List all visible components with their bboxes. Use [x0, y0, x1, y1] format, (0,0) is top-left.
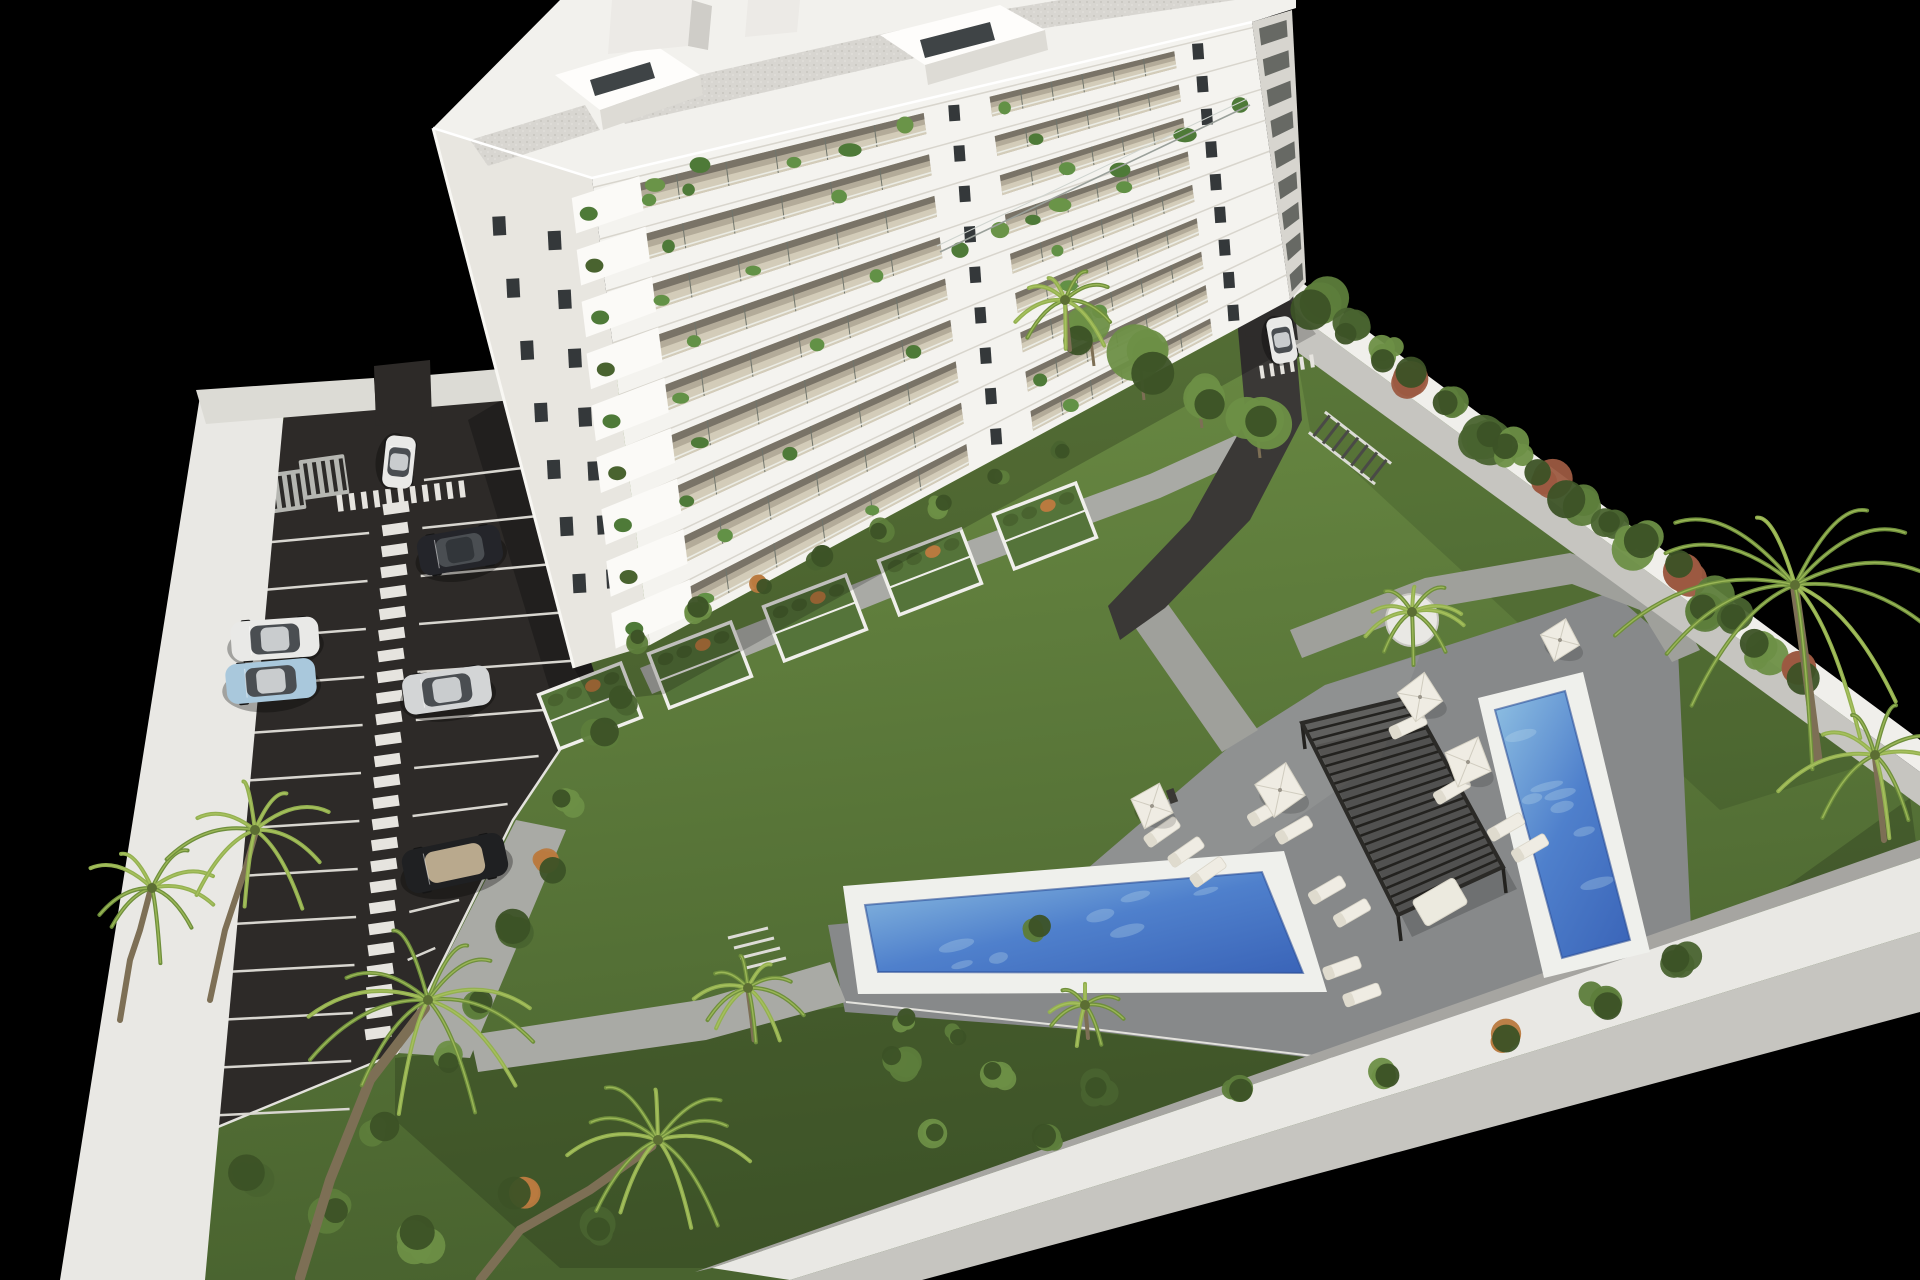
balcony-plant	[906, 345, 922, 359]
pier-window	[1205, 141, 1217, 158]
balcony-plant	[998, 101, 1010, 114]
west-window	[578, 407, 592, 427]
corner-balcony-plant	[603, 414, 621, 428]
balcony-plant	[687, 335, 701, 347]
balcony-plant	[782, 447, 797, 461]
pier-window	[1223, 272, 1235, 289]
scene-canvas	[0, 0, 1920, 1280]
balcony-plant	[870, 269, 884, 282]
roof-terrace-plant	[838, 143, 861, 156]
west-window	[572, 574, 586, 594]
car-roof	[389, 453, 409, 471]
roof-terrace-plant	[645, 178, 665, 192]
roof-terrace-plant	[897, 117, 914, 134]
balcony-plant	[717, 529, 733, 543]
bush	[918, 1119, 948, 1149]
balcony-plant	[1116, 181, 1132, 193]
palm-crown	[1060, 295, 1070, 305]
palm-crown	[147, 883, 157, 893]
car-roof	[256, 668, 287, 694]
roof-chimney-side	[688, 0, 712, 50]
west-window	[520, 340, 534, 360]
palm-crown	[743, 983, 753, 993]
west-window	[506, 278, 520, 298]
roof-terrace-plant	[690, 157, 711, 173]
balcony-plant	[745, 266, 761, 276]
palm-crown	[1080, 1000, 1090, 1010]
balcony-plant	[1025, 215, 1041, 225]
balcony-plant	[691, 437, 709, 448]
corner-balcony-plant	[620, 570, 638, 584]
balcony-plant	[1059, 162, 1076, 175]
balcony-plant	[1063, 399, 1079, 412]
architectural-rendering	[0, 0, 1920, 1280]
balcony-plant	[787, 157, 802, 168]
pier-window	[1196, 76, 1208, 93]
pier-window	[948, 105, 960, 122]
bush	[498, 1177, 541, 1210]
pier-window	[1219, 239, 1231, 256]
balcony-plant	[1051, 245, 1063, 257]
balcony-plant	[642, 194, 656, 206]
palm-crown	[1407, 607, 1417, 617]
pier-window	[1227, 304, 1239, 321]
car-roof	[1273, 331, 1291, 348]
corner-balcony-plant	[597, 362, 615, 376]
palm-crown	[1870, 750, 1880, 760]
pier-window	[1214, 206, 1226, 223]
balcony-plant	[654, 295, 670, 306]
corner-balcony-plant	[591, 311, 609, 325]
pier-window	[980, 347, 992, 364]
roof-terrace-plant	[1049, 198, 1072, 212]
west-window	[534, 403, 548, 423]
bike-rack	[298, 454, 349, 500]
roof-chimney	[745, 0, 800, 37]
balcony-plant	[682, 184, 695, 196]
balcony-plant	[1029, 133, 1044, 145]
roof-chimney	[608, 0, 692, 54]
west-window	[560, 517, 574, 537]
corner-balcony-plant	[608, 466, 626, 480]
west-window	[547, 460, 561, 480]
pier-window	[1210, 174, 1222, 191]
car-roof	[431, 676, 462, 704]
west-window	[548, 231, 562, 251]
west-window	[492, 216, 506, 236]
pier-window	[990, 428, 1002, 445]
balcony-plant	[865, 505, 879, 515]
balcony-plant	[662, 240, 675, 253]
balcony-plant	[672, 393, 689, 404]
palm-crown	[1790, 580, 1800, 590]
palm-crown	[653, 1135, 663, 1145]
balcony-plant	[679, 495, 694, 507]
pier-window	[969, 266, 981, 283]
west-window	[568, 348, 582, 368]
pier-window	[985, 388, 997, 405]
pier-window	[953, 145, 965, 162]
car-roof	[445, 536, 476, 564]
palm-crown	[423, 995, 433, 1005]
pier-window	[974, 307, 986, 324]
balcony-plant	[810, 338, 825, 351]
balcony-plant	[1033, 373, 1047, 386]
corner-balcony-plant	[580, 207, 598, 221]
parking-entrance	[374, 360, 432, 426]
palm-crown	[250, 825, 260, 835]
balcony-plant	[831, 190, 847, 204]
pier-window	[959, 186, 971, 203]
west-window	[558, 289, 572, 309]
car-roof	[260, 626, 290, 652]
pier-window	[1192, 43, 1204, 60]
corner-balcony-plant	[585, 259, 603, 273]
corner-balcony-plant	[614, 518, 632, 532]
